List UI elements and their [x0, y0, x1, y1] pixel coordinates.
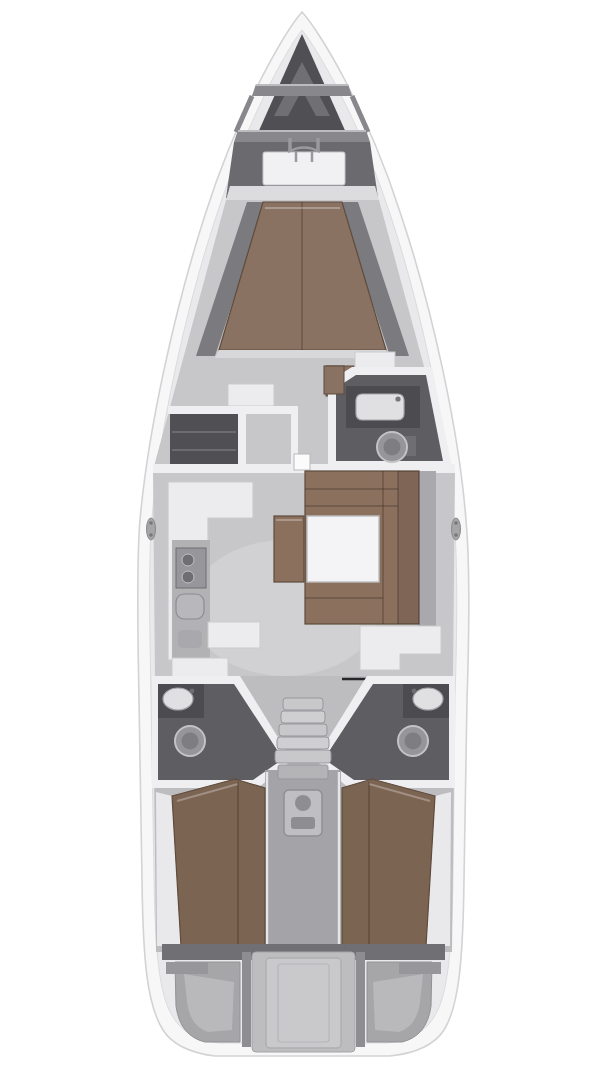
- wardrobe-wall: [238, 410, 246, 468]
- toilet-bowl: [182, 733, 199, 750]
- engine-pulley: [295, 795, 311, 811]
- salon-bench: [274, 516, 304, 582]
- forward-cabin-door: [294, 454, 310, 470]
- cleat-port: [147, 518, 156, 540]
- stair-step-5: [275, 750, 331, 763]
- floor-plan-canvas: [0, 0, 607, 1080]
- aft-cabin-starboard: [342, 779, 451, 946]
- stair-landing: [278, 765, 328, 779]
- stern-divider-starboard: [356, 952, 365, 1047]
- aft-berth-port: [172, 779, 265, 946]
- forward-bench: [228, 384, 274, 406]
- cleat-bolt: [454, 521, 458, 525]
- windlass: [263, 152, 345, 185]
- transom-panel: [266, 958, 341, 1048]
- toilet-bowl: [384, 439, 401, 456]
- port-wardrobe: [170, 414, 238, 468]
- toilet-bowl: [405, 733, 422, 750]
- stern-tab-starboard: [399, 962, 441, 974]
- stair-step-1: [283, 698, 323, 710]
- galley-seat: [172, 658, 228, 678]
- aft-head-port-sink: [163, 688, 193, 710]
- stair-step-3: [279, 724, 327, 736]
- cleat-bolt: [149, 521, 153, 525]
- stern-tab-port: [166, 962, 208, 974]
- forward-head: [324, 366, 452, 468]
- galley-tray: [178, 630, 202, 648]
- salon-table: [307, 516, 379, 582]
- aft-head-starboard-sink: [413, 688, 443, 710]
- forward-headboard: [226, 186, 379, 200]
- galley-sink: [176, 594, 204, 619]
- galley-mid-counter: [208, 622, 260, 648]
- cleat-bolt: [454, 533, 458, 537]
- stove-burner-2: [182, 571, 194, 583]
- aft-cabin-port: [156, 779, 265, 946]
- stair-step-2: [281, 711, 325, 723]
- yacht-floor-plan: [0, 0, 607, 1080]
- aft-head-port-faucet: [190, 689, 195, 694]
- stair-step-4: [277, 737, 329, 749]
- head-side-locker: [324, 366, 344, 394]
- cleat-starboard: [452, 518, 461, 540]
- sofa-backrest-shade: [398, 471, 419, 624]
- bulkhead-fwd-horizontal: [168, 406, 298, 414]
- stern-divider-port: [242, 952, 251, 1047]
- forward-head-faucet: [395, 396, 400, 401]
- cleat-bolt: [149, 533, 153, 537]
- engine-manifold: [291, 817, 315, 829]
- aft-berth-starboard: [342, 779, 435, 946]
- engine-corridor: [265, 770, 341, 952]
- stove-burner-1: [182, 554, 194, 566]
- aft-head-starboard-faucet: [412, 689, 417, 694]
- starboard-shelf-strip: [418, 471, 436, 626]
